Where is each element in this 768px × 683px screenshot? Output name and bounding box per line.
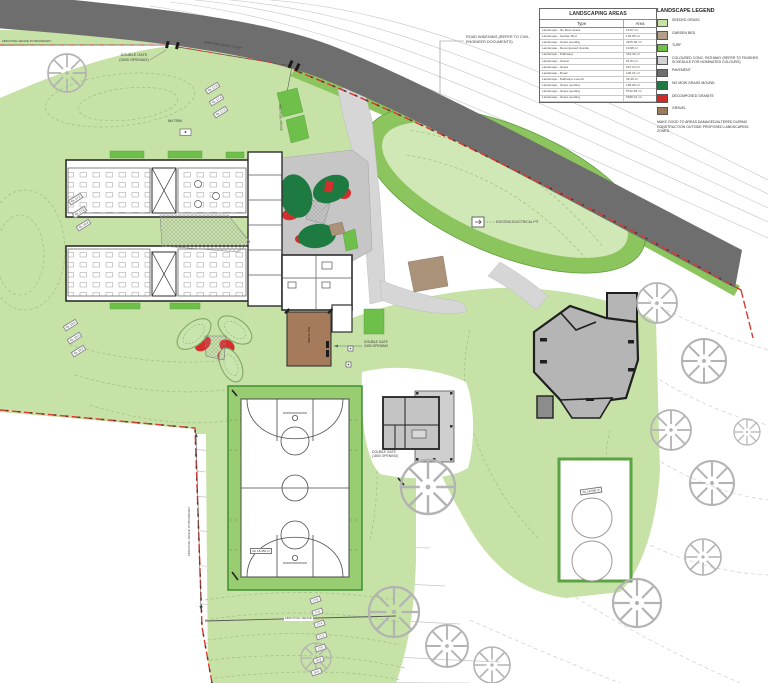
playground-courtyard [275,150,372,268]
legend-label: GARDEN BED [672,31,695,35]
legend-swatch-pavement [657,69,668,78]
legend-note: MAKE GOOD TO AREAS DAMAGED/ALTERED DURIN… [657,120,757,134]
table-row: Landscape - Grass seeding5268.16 m² [540,95,656,101]
outside-boundary-area [0,412,212,683]
legend-label: GRAVEL [672,106,686,110]
legend-swatch-turf [657,44,668,53]
landscape-legend: LANDSCAPE LEGEND SEEDED GRASS GARDEN BED… [657,8,767,134]
legend-swatch-garden-bed [657,31,668,40]
legend-swatch-decomposed-granite [657,94,668,103]
basketball-court [228,386,362,590]
legend-label: COLOURED CONC. PATHWAY (REFER TO FINISHE… [672,56,767,65]
legend-swatch-coloured-conc-pathway [657,56,668,65]
table-title: LANDSCAPING AREAS [540,9,656,20]
landscaping-areas-table: LANDSCAPING AREAS Type Area Landscape - … [539,8,657,103]
legend-label: TURF [672,43,681,47]
water-tanks [559,459,631,581]
legend-item-pavement: PAVEMENT [657,68,767,77]
legend-item-no-mow-grass-mound: NO MOW GRASS MOUND [657,81,767,90]
column-header-area: Area [624,20,656,28]
site-plan-root: LANDSCAPING AREAS Type Area Landscape - … [0,0,768,683]
legend-item-decomposed-granite: DECOMPOSED GRANITE [657,94,767,103]
legend-label: NO MOW GRASS MOUND [672,81,715,85]
legend-item-seeded-grass: SEEDED GRASS [657,18,767,27]
legend-label: PAVEMENT [672,68,691,72]
legend-item-gravel: GRAVEL [657,106,767,115]
legend-swatch-seeded-grass [657,19,668,28]
table-header-row: Type Area [540,20,656,28]
legend-label: SEEDED GRASS [672,18,700,22]
legend-title: LANDSCAPE LEGEND [657,8,767,14]
legend-item-garden-bed: GARDEN BED [657,31,767,40]
legend-item-coloured-conc-pathway: COLOURED CONC. PATHWAY (REFER TO FINISHE… [657,56,767,65]
column-header-type: Type [540,20,624,28]
legend-label: DECOMPOSED GRANITE [672,94,714,98]
legend-swatch-no-mow-grass-mound [657,81,668,90]
legend-item-turf: TURF [657,43,767,52]
legend-swatch-gravel [657,107,668,116]
